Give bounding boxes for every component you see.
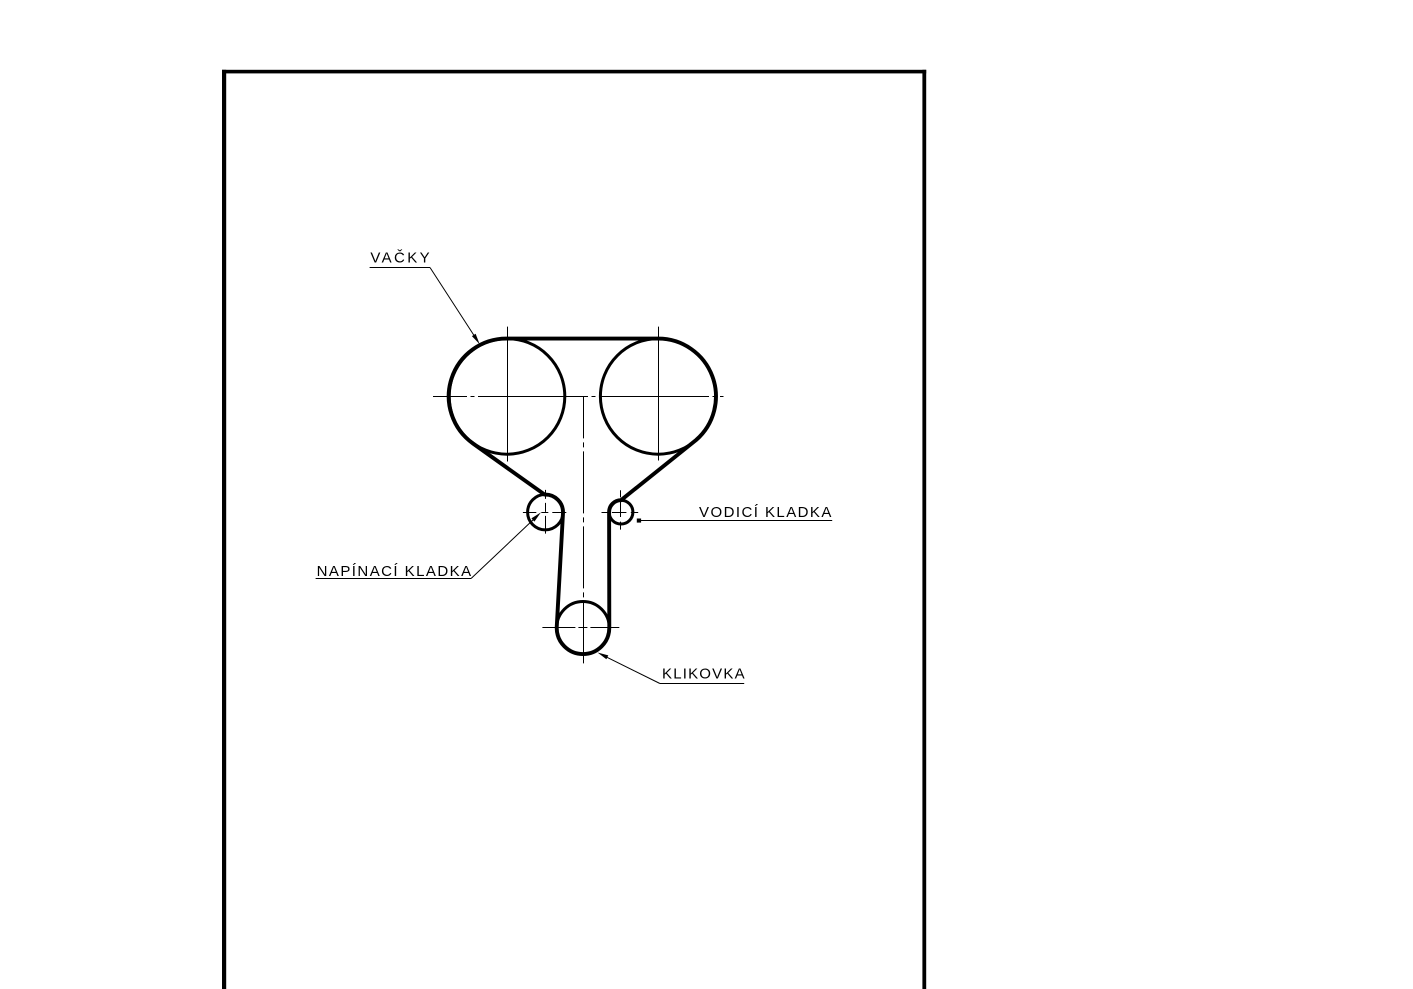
svg-text:VODICÍ KLADKA: VODICÍ KLADKA [699,504,831,521]
svg-text:VAČKY: VAČKY [370,250,429,267]
svg-text:NAPÍNACÍ KLADKA: NAPÍNACÍ KLADKA [317,563,472,580]
svg-text:KLIKOVKA: KLIKOVKA [662,665,745,682]
